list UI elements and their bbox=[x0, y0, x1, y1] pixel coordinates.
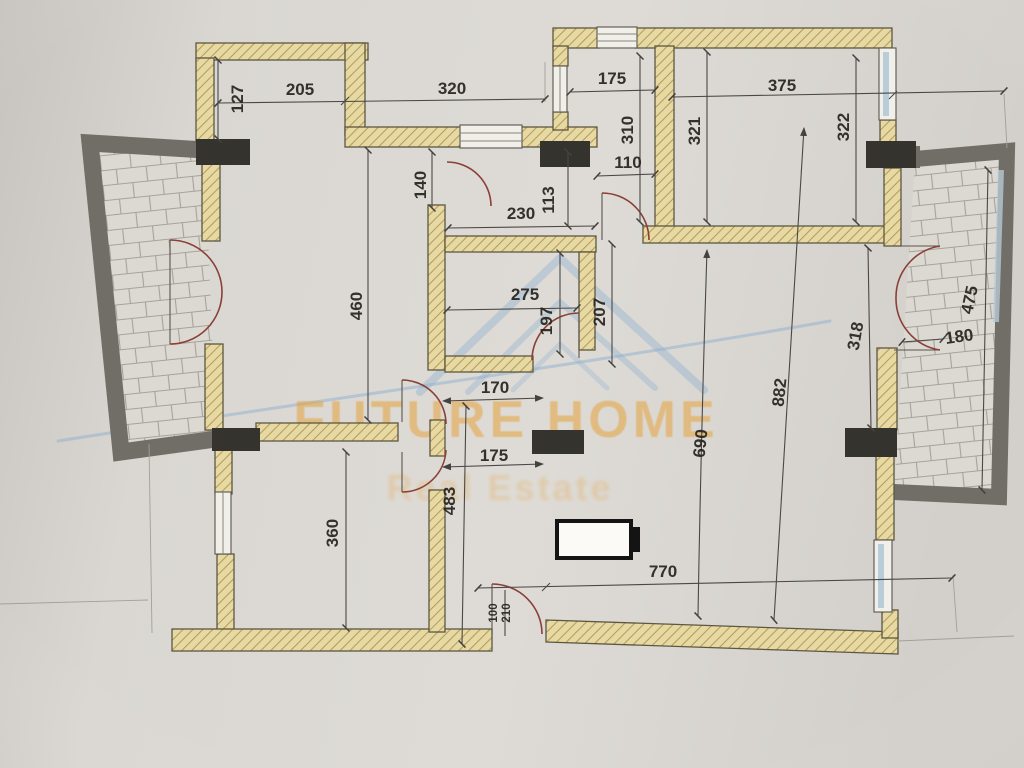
furniture-handle bbox=[629, 527, 640, 552]
wall-segment bbox=[643, 226, 893, 243]
dim-label-483: 483 bbox=[440, 487, 459, 515]
floor-plan-image: FUTURE HOME Real Estate bbox=[0, 0, 1024, 768]
wall-segment bbox=[196, 58, 214, 142]
column bbox=[866, 141, 916, 168]
dim-label-door-width: 100 bbox=[488, 603, 500, 622]
column bbox=[845, 428, 897, 457]
dim-label-320: 320 bbox=[438, 79, 466, 98]
dim-label-110: 110 bbox=[614, 153, 641, 172]
column bbox=[532, 430, 584, 454]
wall-segment bbox=[428, 205, 445, 370]
wall-segment bbox=[256, 423, 398, 441]
wall-segment bbox=[430, 420, 445, 456]
dim-label-230: 230 bbox=[507, 204, 535, 223]
dim-label-770: 770 bbox=[649, 562, 677, 581]
balcony-left bbox=[90, 143, 216, 452]
wall-segment bbox=[215, 450, 232, 494]
window bbox=[597, 27, 637, 48]
dim-label-113: 113 bbox=[539, 186, 558, 213]
dim-label-690: 690 bbox=[690, 428, 712, 458]
furniture-box bbox=[557, 521, 631, 558]
wall-segment bbox=[553, 46, 568, 66]
dim-label-310: 310 bbox=[618, 116, 637, 144]
dim-label-127: 127 bbox=[228, 85, 247, 113]
dim-label-460: 460 bbox=[347, 292, 366, 320]
window bbox=[215, 492, 231, 554]
wall-segment bbox=[635, 28, 892, 48]
dim-label-882: 882 bbox=[769, 377, 791, 407]
wall-segment bbox=[196, 43, 368, 60]
dim-label-321: 321 bbox=[685, 117, 704, 145]
window bbox=[874, 540, 892, 612]
dim-label-170: 170 bbox=[481, 378, 509, 397]
floor-plan-photo: FUTURE HOME Real Estate bbox=[0, 0, 1024, 768]
dim-label-205: 205 bbox=[286, 80, 314, 99]
wall-segment bbox=[877, 348, 897, 430]
wall-segment bbox=[553, 112, 568, 130]
dim-label-175-mid: 175 bbox=[480, 446, 508, 465]
column bbox=[212, 428, 260, 451]
dim-label-197: 197 bbox=[537, 307, 556, 335]
wall-segment bbox=[880, 120, 896, 144]
wall-segment bbox=[445, 236, 596, 252]
wall-segment bbox=[655, 46, 674, 227]
column bbox=[540, 141, 590, 167]
wall-segment bbox=[882, 610, 898, 638]
wall-segment bbox=[876, 456, 894, 540]
wall-segment bbox=[202, 163, 220, 241]
window bbox=[553, 66, 567, 112]
wall-segment bbox=[884, 168, 901, 246]
wall-segment bbox=[205, 344, 223, 430]
dim-label-180: 180 bbox=[944, 325, 975, 348]
window bbox=[879, 48, 896, 120]
wall-segment bbox=[445, 356, 533, 372]
column bbox=[196, 139, 250, 165]
wall-segment bbox=[217, 554, 234, 632]
wall-segment bbox=[345, 43, 365, 135]
dim-label-375: 375 bbox=[768, 76, 796, 95]
wall-segment bbox=[553, 28, 599, 48]
dim-label-door-height: 210 bbox=[501, 603, 513, 622]
window bbox=[460, 125, 522, 148]
dim-label-275: 275 bbox=[511, 285, 539, 304]
dim-label-140: 140 bbox=[411, 171, 430, 199]
dim-label-360: 360 bbox=[323, 519, 342, 547]
furniture-symbol bbox=[557, 521, 640, 558]
dim-label-322: 322 bbox=[834, 113, 853, 141]
dim-label-207: 207 bbox=[590, 298, 609, 326]
dim-label-175-top: 175 bbox=[598, 69, 626, 88]
